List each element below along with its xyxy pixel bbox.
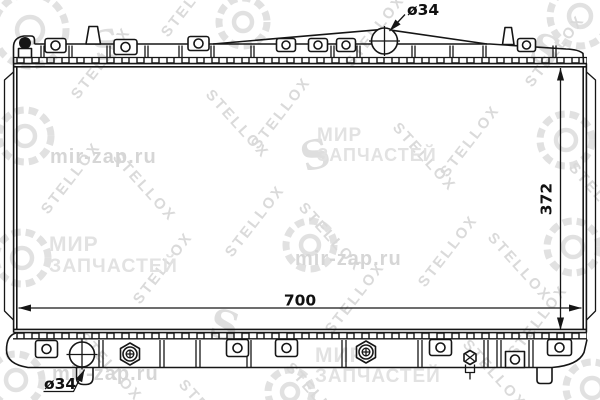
- watermark-logo-letters: S S S S: [86, 19, 566, 352]
- bottom-port-label: ø34: [44, 375, 76, 393]
- top-tank-castellation: [13, 58, 587, 64]
- left-elbow-bracket: [19, 49, 32, 58]
- watermark-brand-text: STELLOX: [158, 0, 225, 40]
- watermark-word-text: ЗАПЧАСТЕЙ: [49, 253, 178, 277]
- tab-hole: [121, 43, 130, 52]
- watermark-brand-text: STELLOX: [484, 229, 555, 305]
- watermark-site-text: mir-zap.ru: [295, 248, 402, 270]
- tab-hole: [436, 343, 445, 352]
- tab-hole: [42, 345, 51, 354]
- top-boss-left: [86, 27, 101, 45]
- radiator-catalog-image: STELLOX STELLOX STELLOX STELLOX STELLOX …: [0, 0, 600, 400]
- watermark-brand-text: STELLOX: [415, 212, 482, 291]
- watermark-site-text: mir-zap.ru: [50, 146, 157, 168]
- tab-hole: [342, 41, 350, 49]
- radiator-outline: 700 372 ø34 ø34: [5, 1, 596, 393]
- bottom-tank-castellation: [13, 333, 587, 339]
- dimension-height-label: 372: [538, 183, 556, 215]
- tab-hole: [314, 41, 322, 49]
- radiator-technical-drawing: STELLOX STELLOX STELLOX STELLOX STELLOX …: [0, 0, 600, 400]
- tab-hole: [282, 41, 290, 49]
- bottom-right-bracket: [537, 368, 552, 384]
- tab-hole: [51, 41, 60, 50]
- watermark-word-text: МИР: [49, 233, 99, 256]
- watermark-brand-text: STELLOX: [175, 376, 246, 400]
- tab-hole: [282, 344, 291, 353]
- drain-valve-icon: [464, 351, 476, 380]
- dimension-width-label: 700: [284, 292, 317, 310]
- drain-plug-icon: [357, 341, 376, 363]
- watermark-word-text: ЗАПЧАСТЕЙ: [317, 144, 437, 165]
- top-port-label: ø34: [407, 1, 439, 19]
- top-boss-right: [503, 28, 515, 45]
- drain-plug-icon: [121, 343, 140, 365]
- watermark-brand-text: STELLOX: [222, 182, 289, 261]
- left-elbow-port: [19, 37, 31, 49]
- top-mounting-tabs: [45, 37, 536, 55]
- tab-hole: [194, 39, 203, 48]
- tab-hole: [555, 343, 564, 352]
- dimension-width: 700: [19, 292, 582, 310]
- watermark-word-text: МИР: [317, 125, 362, 146]
- tab-hole: [523, 41, 531, 49]
- tab-hole: [233, 344, 242, 353]
- tab-hole: [511, 355, 520, 364]
